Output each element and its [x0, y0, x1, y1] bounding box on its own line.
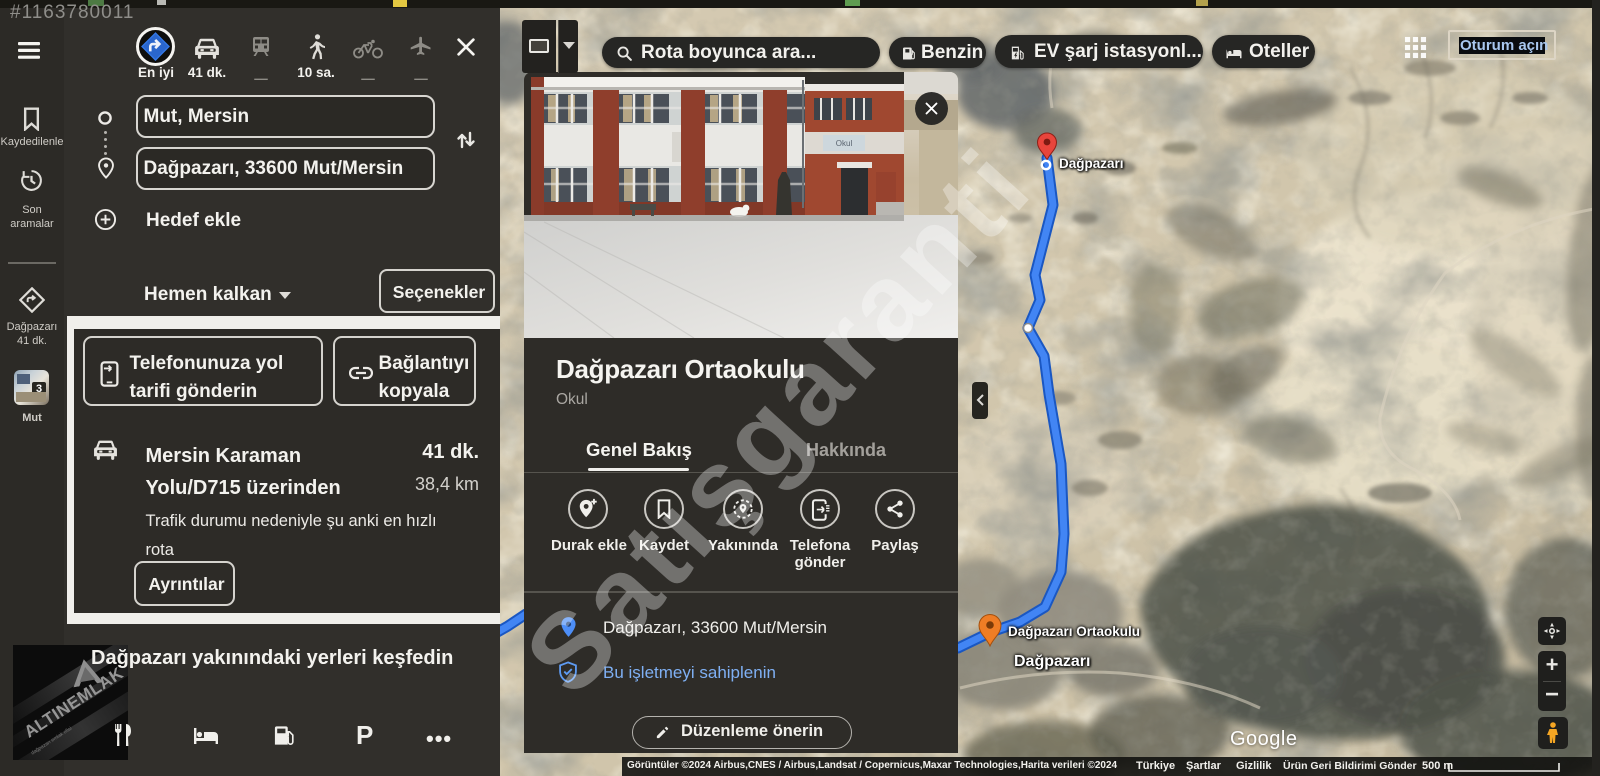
- svg-text:Okul: Okul: [836, 139, 853, 148]
